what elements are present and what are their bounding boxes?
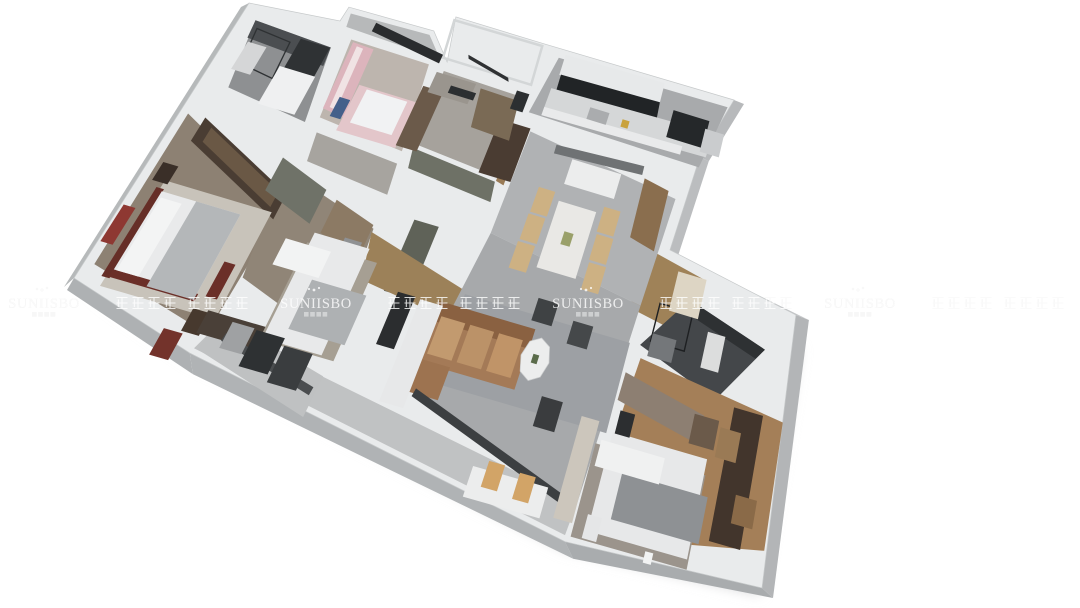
svg-text:SUNIISBO: SUNIISBO — [280, 296, 352, 312]
svg-text:SUNIISBO: SUNIISBO — [8, 296, 80, 312]
svg-text:SUNIISBO: SUNIISBO — [552, 296, 624, 312]
svg-text:SUNIISBO: SUNIISBO — [824, 296, 896, 312]
